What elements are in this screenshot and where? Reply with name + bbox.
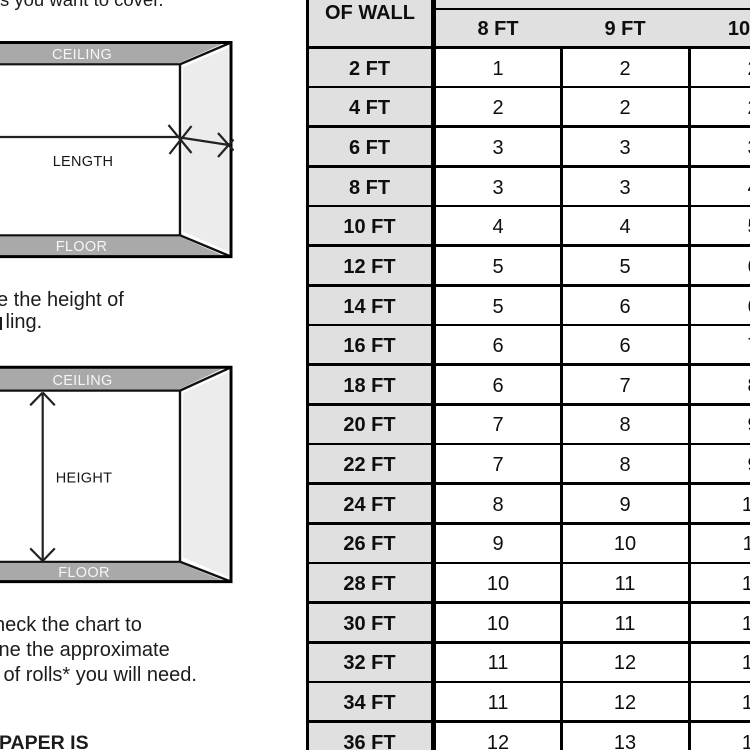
svg-text:CEILING: CEILING xyxy=(52,47,112,63)
svg-text:CEILING: CEILING xyxy=(52,373,112,389)
svg-text:FLOOR: FLOOR xyxy=(58,565,109,581)
svg-text:HEIGHT: HEIGHT xyxy=(56,470,113,486)
svg-text:LENGTH: LENGTH xyxy=(53,154,114,170)
svg-text:FLOOR: FLOOR xyxy=(56,239,107,255)
